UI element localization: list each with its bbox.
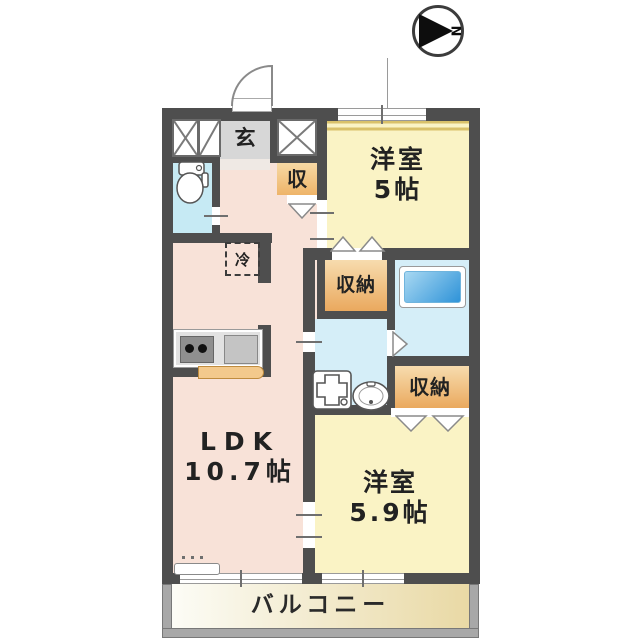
kitchen-stove-icon: [180, 336, 214, 363]
window-tick: [362, 570, 364, 587]
window-tick: [240, 570, 242, 587]
bathroom-door-swing-icon: [392, 331, 408, 357]
window-tick: [381, 105, 383, 124]
compass-n-letter: N: [448, 26, 462, 37]
refrigerator-label: 冷: [225, 251, 260, 269]
toilet-icon: [176, 161, 212, 205]
floor-plan-image: N: [0, 0, 640, 640]
toilet-door-tick: [204, 215, 228, 217]
wall-right: [469, 108, 480, 574]
dot-mark: [182, 556, 185, 559]
dot-mark: [200, 556, 203, 559]
balcony-label: バルコニー: [172, 592, 469, 620]
washing-machine-icon: [312, 370, 352, 410]
pipe-shaft-icon: [172, 119, 199, 157]
wall-left: [162, 108, 173, 574]
bedroom2-name: 洋室: [315, 468, 465, 498]
shoe-box-icon: [198, 119, 221, 157]
kitchen-counter: [174, 330, 262, 367]
bedroom2-door: [303, 502, 315, 548]
bedroom2-door-tick: [296, 536, 322, 538]
ldk-size: 10.7帖: [175, 457, 305, 487]
ac-unit-icon: [174, 563, 220, 575]
bedroom1-door: [317, 200, 327, 248]
kitchen-counter-edge: [198, 366, 264, 379]
dot-mark: [191, 556, 194, 559]
closet1-label: 収納: [325, 274, 387, 297]
entrance-door-arc-icon: [228, 58, 276, 110]
bedroom2-label: 洋室 5.9帖: [315, 468, 465, 528]
closet2-folding-door-icon: [395, 415, 465, 432]
entrance-label: 玄: [220, 126, 270, 151]
closet1-folding-door-icon: [330, 236, 386, 252]
entrance-step: [220, 159, 270, 170]
bedroom1-label: 洋室 5帖: [327, 145, 469, 205]
balcony-wall-bottom: [162, 628, 479, 638]
ldk-label: LDK 10.7帖: [175, 427, 305, 487]
wall-closet1-bottom: [317, 311, 395, 319]
wall-hall-bedroom1: [317, 108, 327, 200]
washroom-door-tick: [296, 341, 322, 343]
ldk-name: LDK: [175, 427, 305, 457]
storage-small-label: 収: [277, 167, 317, 191]
wall-closet1-left: [317, 248, 325, 313]
pipe-shaft2-icon: [277, 119, 317, 156]
boundary-line: [387, 58, 388, 108]
bedroom1-name: 洋室: [327, 145, 469, 175]
storage-small-door-swing-icon: [288, 203, 316, 219]
bedroom2-size: 5.9帖: [315, 498, 465, 528]
closet2-label: 収納: [391, 375, 469, 399]
wall-toilet-right: [212, 155, 220, 243]
kitchen-sink-icon: [224, 335, 258, 364]
bedroom1-top-band: [327, 121, 469, 132]
washbasin-icon: [352, 381, 390, 411]
compass-north-icon: N: [412, 5, 464, 57]
bedroom1-size: 5帖: [327, 175, 469, 205]
wall-bathroom-closet2: [391, 356, 469, 366]
bathtub-icon: [399, 266, 466, 308]
